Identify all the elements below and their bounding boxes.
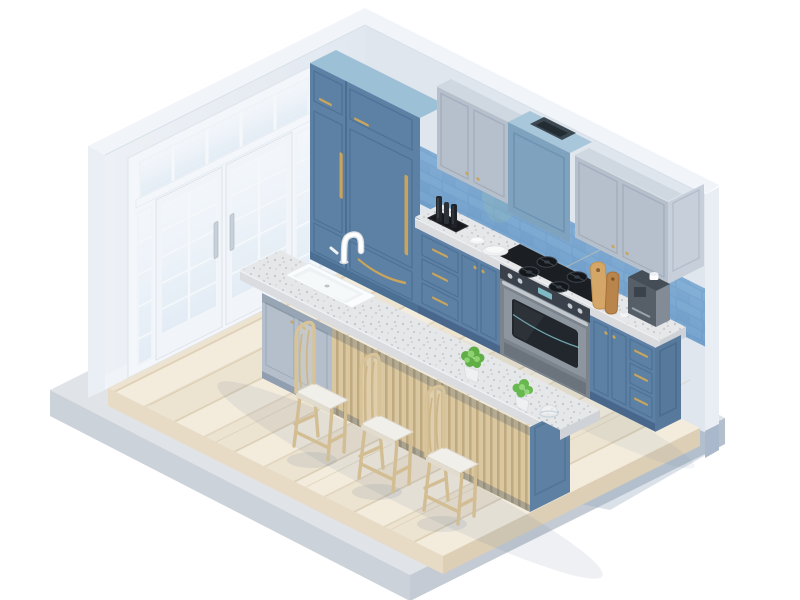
coffee-cup-counter — [621, 310, 628, 317]
door-leaf-left — [156, 167, 222, 360]
kitchen-scene: Isometric kitchen 3D render — [0, 0, 800, 600]
door-handle-right — [230, 213, 234, 251]
kitchen-illustration: Isometric kitchen 3D render — [0, 0, 800, 600]
left-wall-cut — [88, 146, 105, 398]
coffee-cup-top — [650, 272, 659, 280]
sidelight-left — [138, 206, 152, 365]
sink-drain — [325, 285, 330, 288]
right-wall-cut — [705, 187, 719, 431]
base-cabinet-end — [655, 335, 681, 432]
door-handle-left — [214, 221, 218, 259]
